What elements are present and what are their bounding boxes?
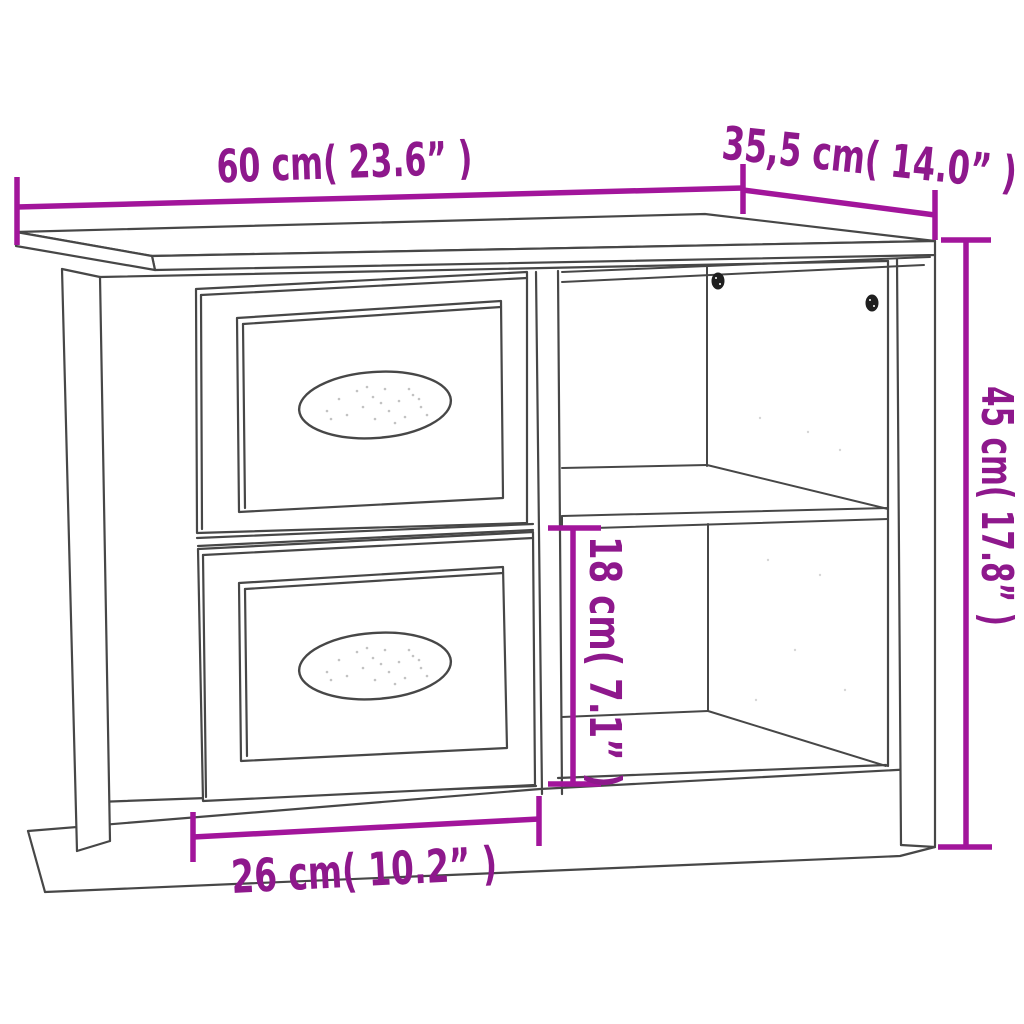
- dimension-height-label: 45 cm( 17.8” ): [971, 386, 1022, 626]
- product-dimension-diagram: 60 cm( 23.6” ) 35,5 cm( 14.0” ) 45 cm( 1…: [0, 0, 1024, 1024]
- diagram-canvas: 60 cm( 23.6” ) 35,5 cm( 14.0” ) 45 cm( 1…: [0, 0, 1024, 1024]
- dimension-depth-label: 35,5 cm( 14.0” ): [720, 116, 1020, 201]
- right-side-face: [897, 255, 935, 847]
- right-side-panel: [897, 255, 935, 847]
- dimension-width-label: 60 cm( 23.6” ): [216, 131, 474, 194]
- dimension-height: 45 cm( 17.8” ): [938, 240, 1022, 847]
- cam-screw: [866, 295, 879, 312]
- drawer-lower: [198, 532, 535, 801]
- dimension-line: [743, 190, 935, 215]
- drawer-upper-bevel-left: [201, 295, 202, 529]
- dimension-line: [17, 188, 743, 207]
- cam-screw: [712, 273, 725, 290]
- cabinet-line-art: [16, 214, 935, 892]
- drawer-upper: [196, 272, 527, 533]
- dimension-compartment-height-label: 18 cm( 7.1” ): [579, 536, 630, 788]
